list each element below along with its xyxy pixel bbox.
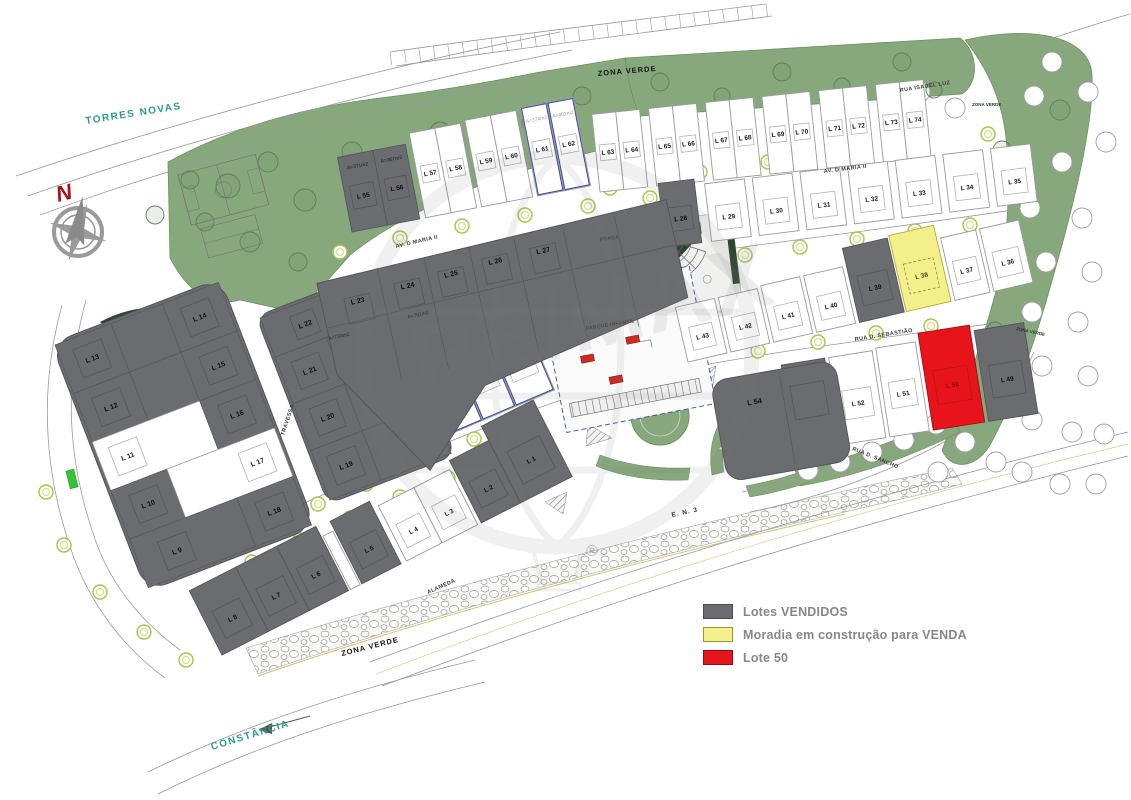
street-tree <box>93 585 107 599</box>
legend-label-lote50: Lote 50 <box>743 651 788 665</box>
tree <box>1022 302 1042 322</box>
green-zone-tree <box>196 213 214 231</box>
site-plan-page: L 55A=371m2L 56A=367m2L 57L 58L 59L 60L … <box>0 0 1131 800</box>
street-tree <box>57 538 71 552</box>
green-zone-tree <box>146 206 164 224</box>
green-zone-tree <box>240 232 260 252</box>
lot-label: L 65 <box>658 143 672 151</box>
green-zone-tree <box>1050 100 1070 120</box>
tree <box>1012 462 1032 482</box>
lot-l-31: L 31 <box>800 167 847 229</box>
lot-l-33: L 33 <box>895 156 942 218</box>
tree <box>955 432 975 452</box>
lot-label: L 66 <box>682 140 696 148</box>
map-label: ZONA VERDE <box>972 102 1001 107</box>
street-tree <box>179 653 193 667</box>
map-label: E. N. 3 <box>671 507 699 519</box>
lot-l-30: L 30 <box>752 173 799 235</box>
lot-label: L 64 <box>625 146 639 154</box>
tree <box>1052 152 1072 172</box>
legend-item-sold: Lotes VENDIDOS <box>703 604 967 619</box>
tree <box>1024 86 1044 106</box>
green-zone-tree <box>773 63 791 81</box>
street-tree <box>455 219 469 233</box>
tree <box>1094 424 1114 444</box>
street-tree <box>467 432 481 446</box>
verge-sw-roundabout <box>596 455 690 480</box>
legend-swatch-lote50 <box>703 650 733 665</box>
tree <box>928 462 948 482</box>
lot-label: L 63 <box>601 149 615 157</box>
street-tree <box>581 199 595 213</box>
legend-swatch-sold <box>703 604 733 619</box>
compass-north-label: N <box>53 178 76 206</box>
lot-l-34: L 34 <box>943 150 990 212</box>
legend: Lotes VENDIDOSMoradia em construção para… <box>703 604 967 673</box>
legend-label-sold: Lotes VENDIDOS <box>743 605 848 619</box>
tree <box>945 98 965 118</box>
map-label: RUA D. SEBASTIÃO <box>854 327 913 343</box>
tree <box>986 452 1006 472</box>
street-tree <box>137 625 151 639</box>
lot-l-35: L 35 <box>990 144 1037 206</box>
lot-label: L 69 <box>771 131 785 139</box>
street-tree <box>793 240 807 254</box>
tree <box>1096 132 1116 152</box>
map-label: TRAVESSA <box>280 404 296 437</box>
tree <box>1078 82 1098 102</box>
lot-l-29: L 29 <box>705 179 752 241</box>
green-marker <box>66 469 78 488</box>
street-tree <box>981 127 995 141</box>
tree <box>1068 312 1088 332</box>
lot-l-40: L 40 <box>804 267 856 333</box>
street-tree <box>811 335 825 349</box>
green-zone-tree <box>294 189 316 211</box>
green-zone-tree <box>289 253 307 271</box>
tree <box>1086 474 1106 494</box>
street-tree <box>311 497 325 511</box>
lot-l-50: L 50 <box>918 325 985 430</box>
lot-label: L 68 <box>738 134 752 142</box>
tree <box>1032 356 1052 376</box>
legend-label-construction: Moradia em construção para VENDA <box>743 628 967 642</box>
map-label: TORRES NOVAS <box>85 101 183 127</box>
street-tree <box>738 248 752 262</box>
green-zone-tree <box>181 171 199 189</box>
green-zone-tree <box>258 152 278 172</box>
tree <box>1036 252 1056 272</box>
map-label: CONSTÂNCIA <box>209 717 291 753</box>
legend-item-lote50: Lote 50 <box>703 650 967 665</box>
lot-label: L 70 <box>795 128 809 136</box>
tree <box>1078 366 1098 386</box>
lot-label: L 71 <box>828 125 842 133</box>
green-zone-tree <box>573 87 591 105</box>
legend-item-construction: Moradia em construção para VENDA <box>703 627 967 642</box>
lot-label: L 72 <box>852 122 866 130</box>
street-tree <box>518 208 532 222</box>
lot-l-41: L 41 <box>761 277 813 343</box>
tree <box>1082 262 1102 282</box>
legend-swatch-construction <box>703 627 733 642</box>
lot-label: L 67 <box>715 137 729 145</box>
lot-l-54: L 54 <box>710 360 852 482</box>
lot-label: L 74 <box>908 116 922 124</box>
tree <box>1062 422 1082 442</box>
tree <box>1072 208 1092 228</box>
lot-label: L 73 <box>885 119 899 127</box>
street-tree <box>333 245 347 259</box>
tree <box>1050 474 1070 494</box>
site-plan-map: L 55A=371m2L 56A=367m2L 57L 58L 59L 60L … <box>0 0 1131 800</box>
tree <box>1042 52 1062 72</box>
lot-l-42: L 42 <box>718 289 770 353</box>
green-zone-tree <box>893 53 911 71</box>
green-zone-tree <box>216 174 240 198</box>
street-tree <box>39 485 53 499</box>
hatched-island <box>545 492 567 514</box>
green-zone-tree <box>651 73 669 91</box>
